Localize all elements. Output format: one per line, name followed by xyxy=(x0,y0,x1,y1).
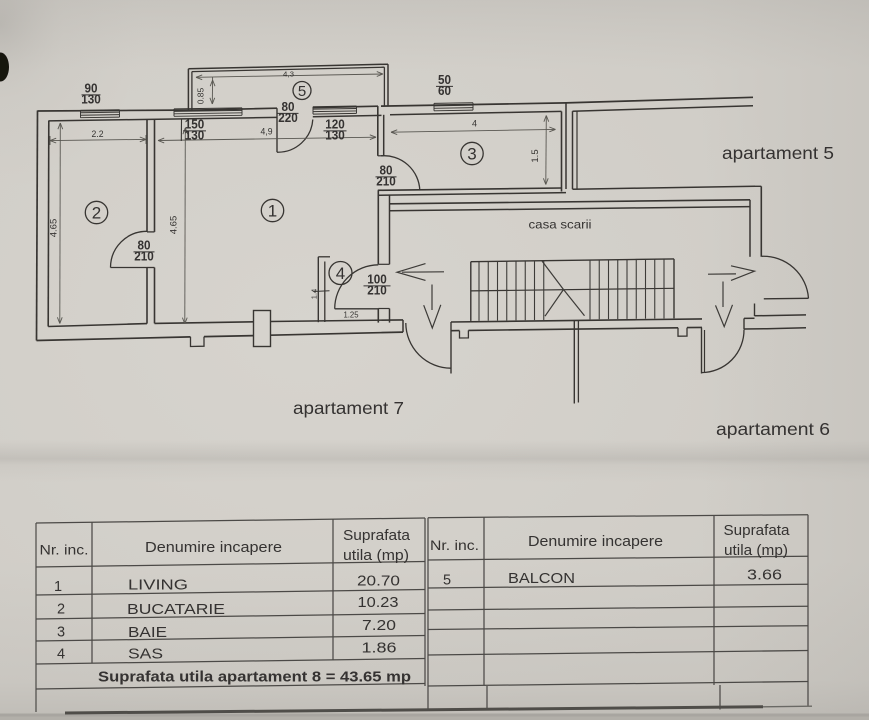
svg-text:BAIE: BAIE xyxy=(128,624,167,641)
svg-text:210: 210 xyxy=(367,284,387,298)
svg-text:Denumire incapere: Denumire incapere xyxy=(145,540,282,556)
svg-text:60: 60 xyxy=(438,84,451,98)
svg-text:apartament 5: apartament 5 xyxy=(722,143,834,163)
svg-text:20.70: 20.70 xyxy=(357,574,400,590)
svg-text:130: 130 xyxy=(325,129,345,143)
svg-text:130: 130 xyxy=(185,129,205,143)
svg-text:1: 1 xyxy=(54,579,62,595)
svg-text:4: 4 xyxy=(336,264,345,283)
svg-text:BUCATARIE: BUCATARIE xyxy=(127,601,225,618)
svg-text:BALCON: BALCON xyxy=(508,570,575,587)
svg-text:4: 4 xyxy=(57,647,65,663)
svg-text:0.85: 0.85 xyxy=(196,87,206,104)
svg-text:1.86: 1.86 xyxy=(362,641,397,657)
svg-text:1.5: 1.5 xyxy=(530,149,541,162)
svg-text:apartament 6: apartament 6 xyxy=(716,419,830,439)
svg-text:Suprafata: Suprafata xyxy=(724,523,791,539)
svg-text:3: 3 xyxy=(467,145,476,164)
svg-text:3.66: 3.66 xyxy=(747,568,782,584)
svg-text:apartament 7: apartament 7 xyxy=(293,398,404,418)
svg-text:210: 210 xyxy=(376,175,396,189)
svg-text:Suprafata: Suprafata xyxy=(343,528,411,544)
svg-text:1.25: 1.25 xyxy=(344,310,359,320)
svg-text:casa scarii: casa scarii xyxy=(529,218,592,232)
svg-text:Denumire incapere: Denumire incapere xyxy=(528,534,663,550)
svg-text:4,9: 4,9 xyxy=(261,127,273,137)
svg-text:3: 3 xyxy=(57,625,65,641)
svg-text:5: 5 xyxy=(443,573,451,589)
svg-text:7.20: 7.20 xyxy=(362,618,396,634)
svg-text:Nr. inc.: Nr. inc. xyxy=(40,542,89,558)
svg-text:2: 2 xyxy=(57,602,65,618)
svg-text:5: 5 xyxy=(298,83,306,100)
svg-text:LIVING: LIVING xyxy=(128,577,188,594)
svg-text:utila (mp): utila (mp) xyxy=(724,543,788,559)
svg-text:2.2: 2.2 xyxy=(92,129,104,139)
svg-text:210: 210 xyxy=(134,250,154,264)
svg-text:1: 1 xyxy=(268,202,277,221)
svg-text:130: 130 xyxy=(81,93,101,107)
svg-text:4,3: 4,3 xyxy=(283,69,294,78)
svg-text:SAS: SAS xyxy=(128,646,163,663)
svg-text:Nr. inc.: Nr. inc. xyxy=(430,537,479,553)
svg-text:10.23: 10.23 xyxy=(358,595,399,611)
svg-text:2: 2 xyxy=(92,204,101,223)
svg-text:Suprafata utila apartament 8 =: Suprafata utila apartament 8 = 43.65 mp xyxy=(98,670,411,686)
svg-text:4.65: 4.65 xyxy=(169,216,180,235)
svg-text:4: 4 xyxy=(472,119,477,129)
svg-text:1.4: 1.4 xyxy=(310,289,319,299)
svg-text:220: 220 xyxy=(278,111,298,125)
svg-text:utila (mp): utila (mp) xyxy=(343,548,409,564)
svg-text:4.65: 4.65 xyxy=(49,219,60,238)
